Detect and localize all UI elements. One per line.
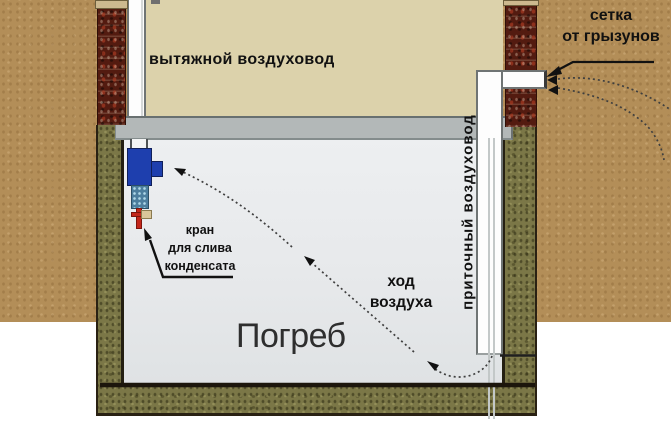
- label-supply-duct: приточный воздуховод: [460, 114, 477, 310]
- label-air-flow-line2: воздуха: [370, 292, 432, 313]
- label-air-flow-line1: ход: [370, 271, 432, 292]
- label-pipe-height: 20-50 см: [559, 326, 576, 396]
- exhaust-fan-outlet: [151, 161, 163, 177]
- pipe-shade-line: [141, 0, 143, 116]
- label-condensate-tap-line2: для слива: [165, 239, 236, 257]
- pipe-shade-line: [488, 138, 490, 419]
- cropped-top-element: [151, 0, 160, 4]
- dimension-tick-bottom-slash: [545, 388, 557, 398]
- dimension-tick-top-slash: [545, 357, 557, 367]
- ceiling-slab: [115, 116, 513, 140]
- supply-duct-pipe: [476, 72, 503, 355]
- label-cellar: Погреб: [236, 317, 346, 356]
- condensate-tap-handle: [141, 210, 152, 219]
- label-rodent-mesh: сетка от грызунов: [551, 5, 671, 47]
- label-condensate-tap-line1: кран: [165, 221, 236, 239]
- label-rodent-mesh-line2: от грызунов: [551, 26, 671, 47]
- label-condensate-tap-line3: конденсата: [165, 257, 236, 275]
- label-exhaust-duct: вытяжной воздуховод: [149, 51, 335, 69]
- brick-pillar-right: [505, 5, 537, 127]
- brick-pillar-left: [97, 8, 126, 125]
- label-air-flow: ход воздуха: [370, 271, 432, 313]
- label-rodent-mesh-line1: сетка: [551, 5, 671, 26]
- condensate-collector: [131, 185, 149, 209]
- exhaust-duct-pipe: [127, 0, 146, 116]
- cellar-ventilation-diagram: вытяжной воздуховод сетка от грызунов пр…: [0, 0, 671, 447]
- pillar-cap-left: [95, 0, 128, 9]
- pipe-shade-line: [493, 138, 495, 419]
- pillar-cap-right: [503, 0, 539, 6]
- label-condensate-tap: кран для слива конденсата: [165, 221, 236, 275]
- exhaust-fan-body: [127, 148, 152, 186]
